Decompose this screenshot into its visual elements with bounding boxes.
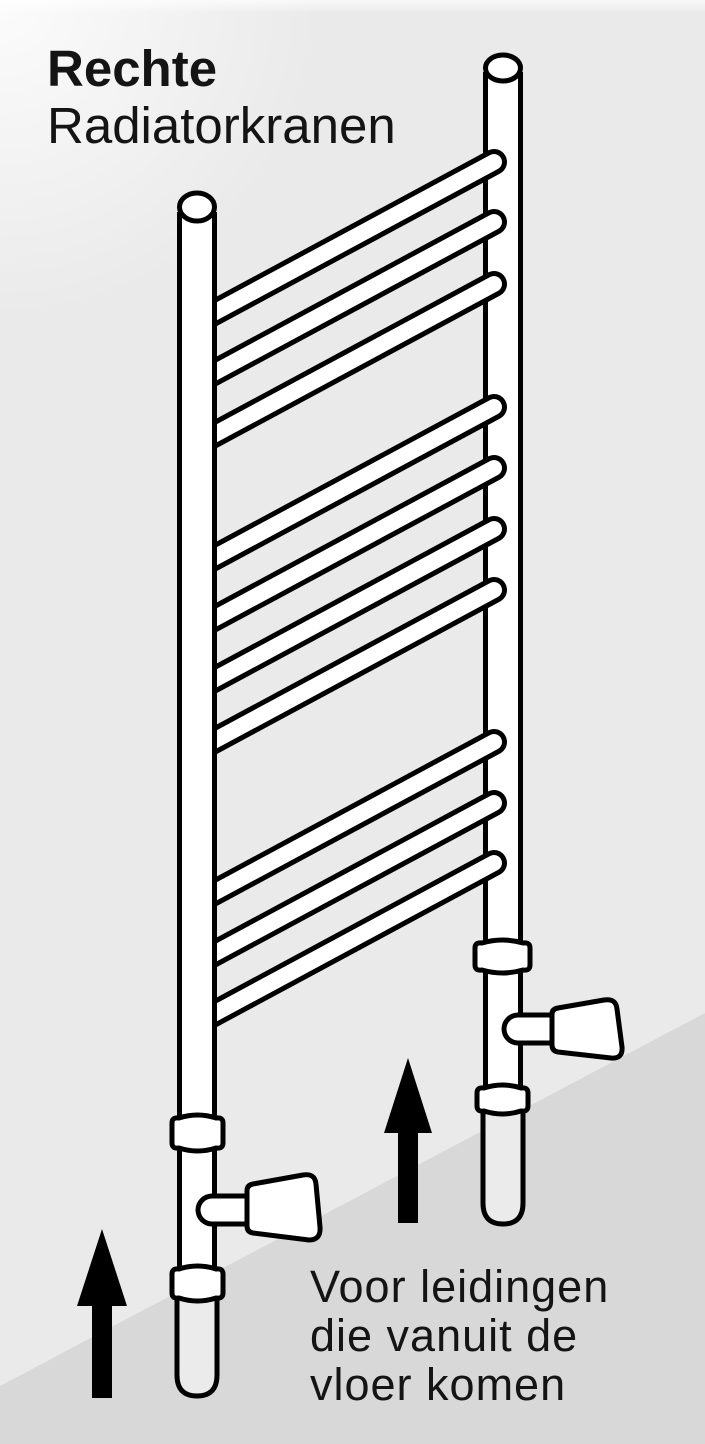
caption-line-3: vloer komen: [310, 1360, 609, 1409]
title-line-regular: Radiatorkranen: [47, 97, 396, 154]
title-line-bold: Rechte: [47, 40, 396, 97]
left-pipe-collar-top: [172, 1115, 223, 1151]
left-valve: [212, 1175, 320, 1240]
page-title: Rechte Radiatorkranen: [47, 40, 396, 154]
diagram-canvas: Rechte Radiatorkranen Voor leidingen die…: [0, 0, 705, 1444]
caption-line-1: Voor leidingen: [310, 1262, 609, 1311]
floor-pipes-caption: Voor leidingen die vanuit de vloer komen: [310, 1262, 609, 1409]
right-valve: [518, 1000, 622, 1058]
left-valve-knob: [247, 1175, 320, 1240]
right-pipe-collar-bottom: [477, 1085, 528, 1114]
right-valve-knob: [552, 1000, 622, 1058]
right-pipe-collar-top: [475, 940, 530, 973]
left-pipe-top-cap: [180, 193, 215, 221]
left-pipe-collar-bottom: [172, 1266, 223, 1301]
right-floor-pipe: [483, 1104, 523, 1224]
radiator-rungs: [195, 162, 494, 1024]
radiator-illustration: [0, 0, 705, 1444]
caption-line-2: die vanuit de: [310, 1311, 609, 1360]
right-pipe-top-cap: [486, 55, 521, 81]
